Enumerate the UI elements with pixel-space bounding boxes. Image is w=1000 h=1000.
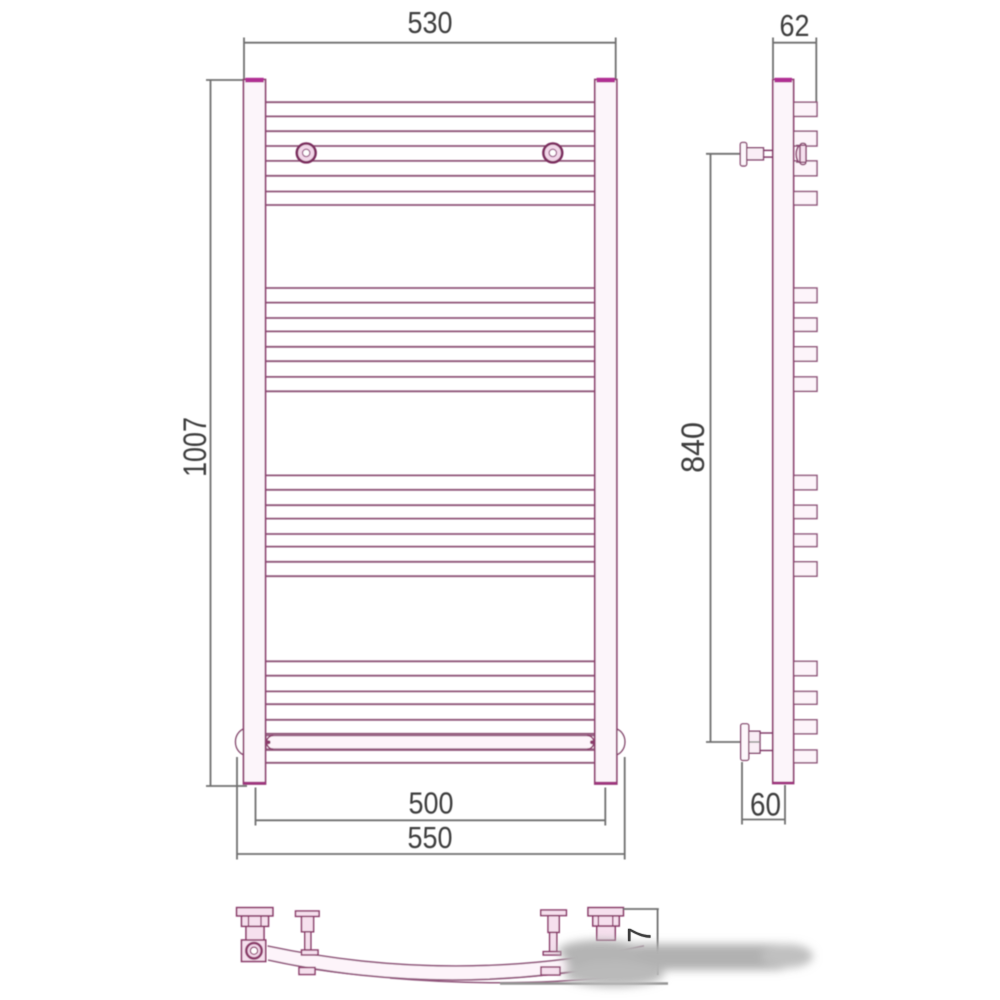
svg-text:500: 500	[409, 787, 454, 821]
svg-text:1007: 1007	[178, 417, 214, 477]
svg-text:840: 840	[675, 422, 711, 473]
svg-text:62: 62	[780, 9, 810, 43]
svg-text:530: 530	[408, 6, 453, 40]
svg-text:550: 550	[408, 821, 453, 855]
svg-text:60: 60	[750, 788, 781, 823]
svg-text:7: 7	[622, 928, 658, 943]
